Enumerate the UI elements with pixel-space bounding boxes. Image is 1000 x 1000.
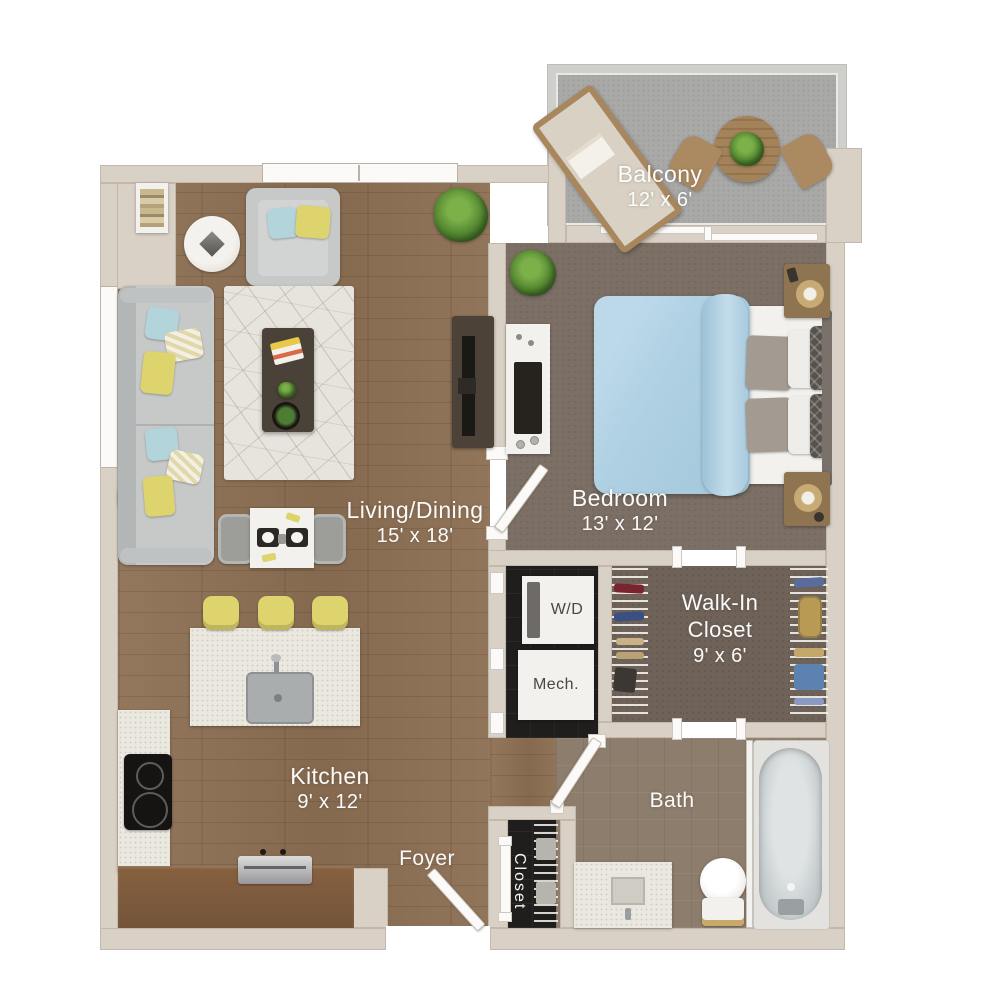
laundry-walkin-divider	[598, 566, 612, 722]
table-base	[199, 231, 224, 256]
tub-basin	[759, 748, 822, 920]
living-top-window-mullion	[358, 165, 360, 181]
toilet-tank	[702, 898, 744, 926]
bed-pillow-gray-2	[745, 397, 793, 453]
bedroom-south-wall-a	[488, 550, 678, 566]
living-plant	[434, 188, 488, 242]
balcony-name: Balcony	[560, 160, 760, 188]
walkin-dims: 9' x 6'	[654, 644, 786, 668]
bedroom-dresser	[506, 324, 550, 454]
walkin-south-wall-a	[598, 722, 678, 738]
hanging-clothes	[794, 648, 824, 657]
hanging-clothes	[794, 577, 825, 588]
bath-label: Bath	[600, 788, 744, 814]
walkin-label: Walk-In Closet 9' x 6'	[654, 590, 786, 668]
book-stack	[140, 189, 164, 227]
washer-dryer-unit: W/D	[522, 576, 594, 644]
dresser-knob-2	[528, 340, 534, 346]
armchair-pillow-blue	[267, 207, 300, 240]
decor-bowl	[272, 402, 300, 430]
bath-name: Bath	[650, 789, 695, 812]
range-knob-1	[260, 849, 266, 855]
laundry-door-tab-1	[490, 572, 504, 594]
walkin-north-jamb-left	[672, 546, 682, 568]
mech-label: Mech.	[518, 650, 594, 720]
lamp	[796, 280, 824, 308]
hanging-clothes	[614, 611, 644, 622]
dining-chair-left	[218, 514, 254, 564]
bedroom-tv	[514, 362, 542, 434]
cooktop	[124, 754, 172, 830]
napkin-1	[285, 512, 300, 523]
plate-right	[291, 532, 303, 543]
sofa-pillow-yellow-2	[142, 475, 175, 517]
wd-label: W/D	[540, 576, 594, 644]
garment-bag	[798, 596, 822, 638]
foyer-wall-stub	[352, 868, 388, 928]
nightstand-bottom	[784, 472, 830, 526]
storage-bin	[536, 838, 556, 860]
bath-vanity	[574, 862, 672, 928]
walkin-shelf-right	[790, 568, 828, 718]
bar-stool-2	[258, 596, 294, 630]
duvet-fold	[702, 294, 748, 496]
sofa-cushion-seam	[136, 424, 214, 426]
folded-item	[613, 667, 637, 693]
bedroom-dims: 13' x 12'	[515, 512, 725, 536]
dresser-knob-1	[516, 334, 522, 340]
foyer-label: Foyer	[355, 846, 499, 872]
tub-partition	[746, 740, 753, 928]
faucet-head	[271, 654, 281, 662]
bottom-wall-left	[100, 928, 386, 950]
dresser-knob-4	[530, 436, 539, 445]
bed-pillow-gray-1	[745, 335, 793, 391]
hanging-clothes	[616, 652, 644, 659]
bedroom-south-wall-b	[740, 550, 826, 566]
bottom-wall-right	[490, 928, 845, 950]
balcony-label: Balcony 12' x 6'	[560, 160, 760, 212]
armchair-pillow-yellow	[295, 205, 332, 240]
sink-drain	[274, 694, 282, 702]
hanging-clothes	[794, 698, 824, 705]
dresser-knob-3	[516, 440, 525, 449]
kitchen-label: Kitchen 9' x 12'	[228, 762, 432, 814]
side-table-top	[184, 216, 240, 272]
folded-item	[794, 664, 824, 690]
bedroom-door-jamb-top	[486, 446, 508, 460]
walkin-south-wall-b	[740, 722, 826, 738]
bedroom-label: Bedroom 13' x 12'	[515, 484, 725, 536]
living-top-window	[262, 163, 458, 183]
washer-door	[527, 582, 540, 638]
bedroom-plant	[510, 250, 556, 296]
headboard	[822, 310, 832, 486]
tub-faucet	[778, 899, 804, 915]
hanging-clothes	[614, 583, 644, 594]
tv-console-living	[452, 316, 494, 448]
vanity-sink	[608, 874, 648, 908]
balcony-dims: 12' x 6'	[560, 188, 760, 212]
coffee-table	[262, 328, 314, 432]
burner-small	[136, 762, 164, 790]
balcony-slider-panel-b	[706, 233, 818, 241]
walkin-south-jamb-right	[736, 718, 746, 740]
living-dims: 15' x 18'	[310, 524, 520, 548]
bar-stool-1	[203, 596, 239, 630]
plate-left	[262, 532, 274, 543]
sofa-back	[118, 286, 136, 565]
nightstand-decor	[786, 267, 799, 283]
napkin-2	[261, 553, 276, 563]
media-box	[458, 378, 476, 394]
living-label: Living/Dining 15' x 18'	[310, 496, 520, 548]
dining-table	[250, 508, 314, 568]
nightstand-decor	[814, 512, 824, 522]
range-knob-2	[280, 849, 286, 855]
sofa-pillow-yellow-1	[140, 350, 176, 395]
walkin-north-jamb-right	[736, 546, 746, 568]
salt-pepper	[278, 534, 286, 544]
walkin-south-jamb-left	[672, 718, 682, 740]
bar-stool-3	[312, 596, 348, 630]
entry-closet-shelf	[534, 824, 558, 924]
foyer-name: Foyer	[399, 847, 455, 870]
sofa-arm-bottom	[120, 548, 212, 563]
walkin-name: Walk-In Closet	[654, 590, 786, 644]
nightstand-top	[784, 264, 830, 318]
storage-bin	[536, 882, 556, 904]
range-appliance	[238, 856, 312, 884]
kitchen-counter-bottom	[118, 866, 354, 928]
laundry-door-tab-2	[490, 648, 504, 670]
magazine	[270, 337, 304, 366]
burner-large	[132, 792, 168, 828]
bedroom-name: Bedroom	[515, 484, 725, 512]
sofa-arm-top	[120, 288, 212, 303]
vanity-faucet	[625, 908, 631, 920]
bathtub	[753, 740, 830, 930]
laundry-door-tab-3	[490, 712, 504, 734]
armchair	[246, 188, 340, 286]
hanging-clothes	[616, 638, 644, 645]
entry-closet-label: Closet	[506, 840, 532, 924]
balcony-slider-joint	[704, 226, 712, 241]
walkin-shelf-left	[612, 568, 648, 718]
entry-threshold	[386, 926, 490, 954]
range-handle	[244, 866, 306, 869]
mechanical-unit: Mech.	[518, 650, 594, 720]
floor-plan: W/D Mech. Balcony 12' x 6' Living/Dining…	[0, 0, 1000, 1000]
table-plant	[278, 382, 296, 398]
tub-drain	[787, 883, 795, 891]
kitchen-name: Kitchen	[228, 762, 432, 790]
sofa	[118, 286, 214, 565]
kitchen-island	[190, 628, 360, 726]
kitchen-dims: 9' x 12'	[228, 790, 432, 814]
living-left-window	[100, 286, 118, 468]
lamp	[794, 484, 822, 512]
living-name: Living/Dining	[310, 496, 520, 524]
